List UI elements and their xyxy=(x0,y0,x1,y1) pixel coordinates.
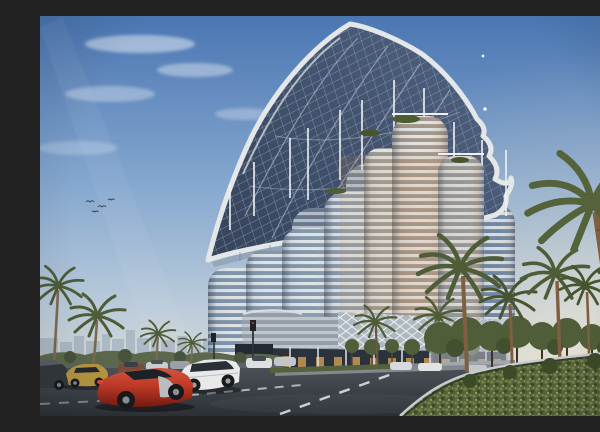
vignette xyxy=(40,16,600,416)
rendered-photo xyxy=(40,16,600,416)
